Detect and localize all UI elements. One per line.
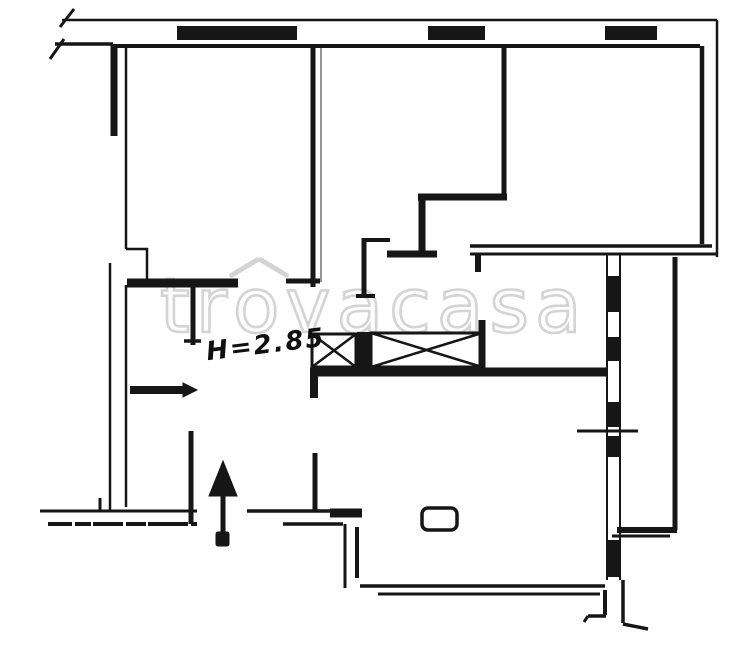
- door-jamb: [183, 383, 197, 397]
- window-icon: [177, 26, 297, 40]
- room-top-left-walls: [114, 45, 321, 287]
- floor-plan: trovacasa: [0, 0, 744, 657]
- window-bars: [177, 26, 657, 40]
- floor-plan-drawing: [0, 0, 744, 657]
- hatched-closet: [310, 320, 607, 398]
- exterior-walls: [50, 9, 717, 257]
- window-icon: [428, 26, 485, 40]
- pillar-symbol: [422, 508, 457, 530]
- window-icon: [605, 26, 657, 40]
- right-wing-walls: [577, 255, 677, 580]
- lower-left-walls: [110, 263, 201, 524]
- room-divider-walls: [356, 47, 716, 297]
- entrance-arrow-icon: [209, 461, 237, 546]
